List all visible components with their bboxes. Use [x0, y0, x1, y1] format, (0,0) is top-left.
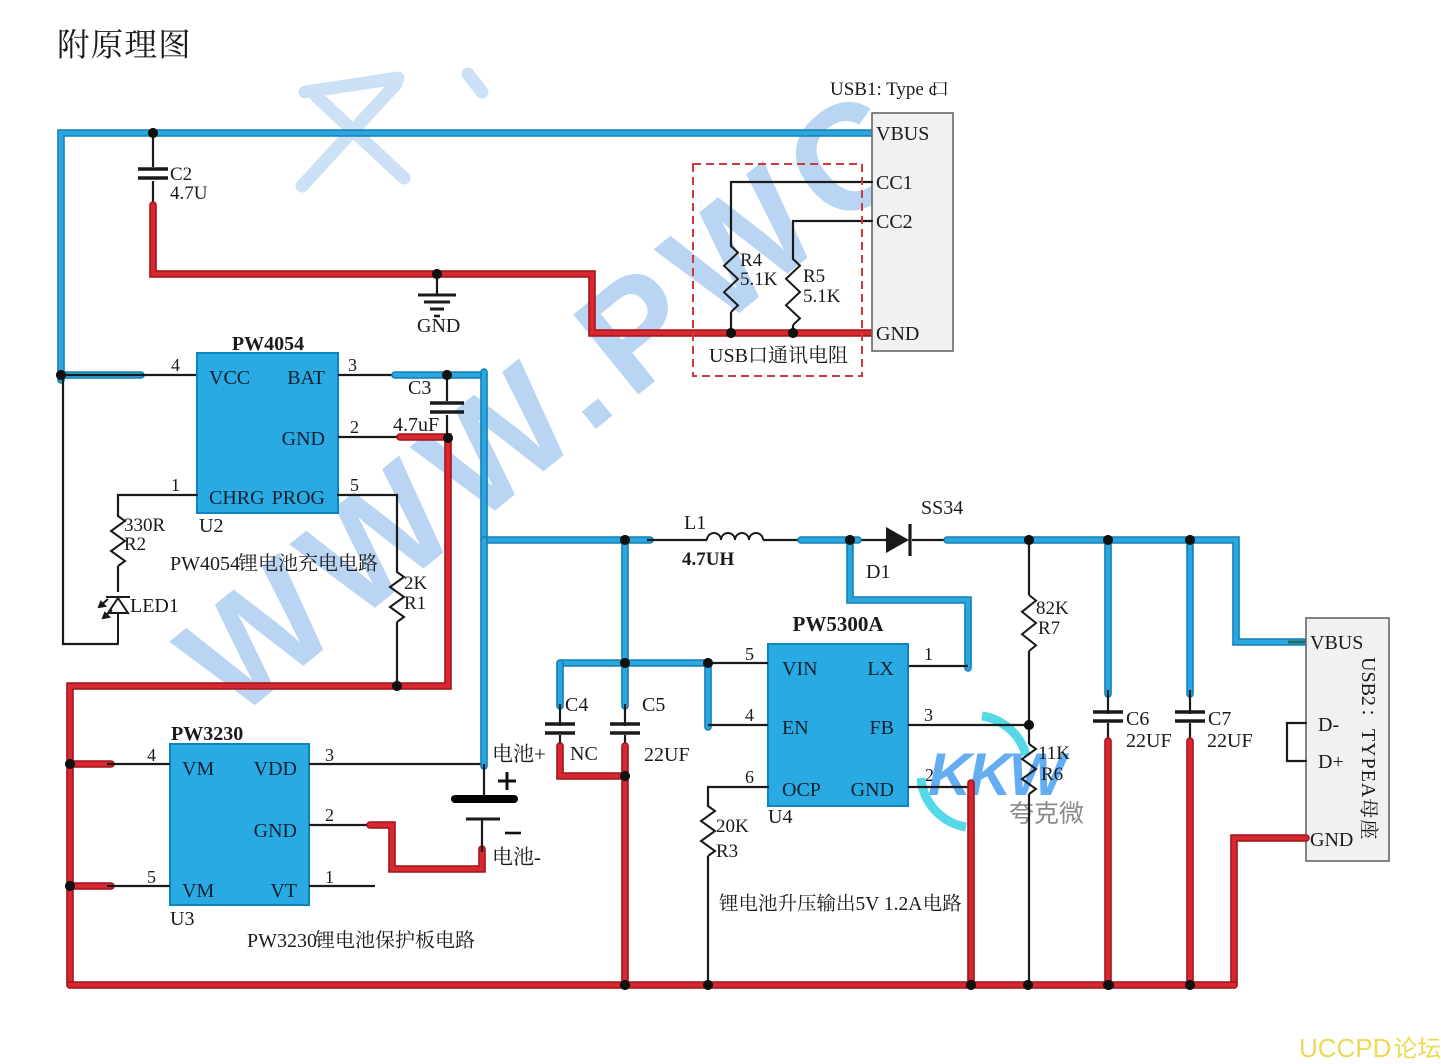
svg-text:VT: VT — [270, 880, 297, 902]
svg-text:GND: GND — [254, 820, 297, 842]
svg-text:P: P — [1357, 758, 1379, 769]
svg-text:C6: C6 — [1126, 708, 1149, 730]
svg-text:3: 3 — [924, 705, 933, 725]
svg-text:U4: U4 — [768, 806, 792, 828]
svg-text:2: 2 — [350, 417, 359, 437]
svg-text:LX: LX — [867, 658, 894, 680]
svg-text:+: + — [534, 742, 546, 766]
svg-text:-: - — [534, 845, 541, 869]
svg-text:CHRG: CHRG — [209, 487, 265, 509]
svg-text:5: 5 — [350, 475, 359, 495]
svg-text:4: 4 — [745, 705, 754, 725]
svg-text:CC2: CC2 — [876, 211, 913, 233]
svg-text:GND: GND — [417, 315, 460, 337]
svg-text:PW3230: PW3230 — [171, 723, 243, 745]
svg-text:EN: EN — [782, 717, 809, 739]
svg-text:1: 1 — [171, 475, 180, 495]
svg-text:PW3230: PW3230 — [247, 930, 317, 952]
svg-text:R7: R7 — [1038, 618, 1060, 639]
svg-text:C2: C2 — [170, 164, 192, 185]
svg-text:USB: USB — [709, 345, 748, 367]
svg-text:C7: C7 — [1208, 708, 1231, 730]
svg-text:6: 6 — [745, 767, 754, 787]
svg-text:BAT: BAT — [287, 367, 325, 389]
svg-text:VBUS: VBUS — [876, 123, 929, 145]
svg-text:PW4054: PW4054 — [170, 553, 240, 575]
svg-text:R6: R6 — [1041, 764, 1063, 785]
svg-text:4.7uF: 4.7uF — [393, 414, 439, 436]
svg-text:20K: 20K — [716, 816, 749, 837]
svg-text:FB: FB — [870, 717, 894, 739]
svg-text:5: 5 — [745, 644, 754, 664]
svg-text:VM: VM — [182, 880, 214, 902]
svg-text:5V 1.2A: 5V 1.2A — [856, 894, 923, 915]
svg-text:4: 4 — [147, 745, 156, 765]
svg-text:LED1: LED1 — [130, 595, 179, 617]
svg-text:4.7UH: 4.7UH — [682, 549, 734, 570]
svg-text:USB1: Type c: USB1: Type c — [830, 79, 937, 100]
svg-text:C5: C5 — [642, 694, 665, 716]
svg-text:U3: U3 — [170, 908, 194, 930]
svg-text:USB2: USB2 — [1357, 657, 1379, 706]
svg-text:VCC: VCC — [209, 367, 250, 389]
svg-text:U2: U2 — [199, 515, 223, 537]
svg-text:C4: C4 — [565, 694, 588, 716]
svg-text:CC1: CC1 — [876, 172, 913, 194]
svg-text:T: T — [1357, 729, 1379, 741]
svg-text:D1: D1 — [866, 561, 890, 583]
svg-text:R3: R3 — [716, 841, 738, 862]
svg-text:1: 1 — [325, 867, 334, 887]
svg-text:GND: GND — [876, 323, 919, 345]
svg-text:GND: GND — [1310, 829, 1353, 851]
svg-text:R1: R1 — [404, 593, 426, 614]
svg-text:GND: GND — [851, 779, 894, 801]
svg-text:2K: 2K — [404, 573, 428, 594]
svg-text:SS34: SS34 — [921, 497, 963, 519]
svg-text:PW4054: PW4054 — [232, 333, 304, 355]
svg-text:22UF: 22UF — [1207, 730, 1253, 752]
svg-text:PW5300A: PW5300A — [793, 612, 885, 636]
svg-text:D+: D+ — [1318, 751, 1344, 773]
svg-text:2: 2 — [325, 805, 334, 825]
svg-text:1: 1 — [924, 644, 933, 664]
svg-text:22UF: 22UF — [644, 744, 690, 766]
svg-text:C3: C3 — [408, 377, 431, 399]
svg-text:VBUS: VBUS — [1310, 632, 1363, 654]
svg-text:NC: NC — [570, 743, 598, 765]
svg-text:L1: L1 — [684, 512, 706, 534]
svg-text:VDD: VDD — [254, 758, 297, 780]
svg-text:OCP: OCP — [782, 779, 821, 801]
svg-text:3: 3 — [348, 355, 357, 375]
svg-text:A: A — [1357, 783, 1379, 798]
svg-text:330R: 330R — [124, 515, 166, 536]
svg-text:VIN: VIN — [782, 658, 818, 680]
svg-text:11K: 11K — [1038, 743, 1070, 764]
svg-text:4.7U: 4.7U — [170, 183, 208, 204]
svg-text:D-: D- — [1318, 714, 1339, 736]
svg-text:5: 5 — [147, 867, 156, 887]
svg-text:VM: VM — [182, 758, 214, 780]
svg-text:5.1K: 5.1K — [740, 269, 778, 290]
svg-text:UCCPD: UCCPD — [1299, 1033, 1391, 1063]
svg-text:R2: R2 — [124, 534, 146, 555]
svg-text:R5: R5 — [803, 266, 825, 287]
svg-text:R4: R4 — [740, 250, 763, 271]
svg-text:Y: Y — [1357, 742, 1379, 756]
svg-text:82K: 82K — [1036, 598, 1069, 619]
svg-text:3: 3 — [325, 745, 334, 765]
svg-text:22UF: 22UF — [1126, 730, 1172, 752]
svg-text:5.1K: 5.1K — [803, 286, 841, 307]
svg-text:E: E — [1357, 770, 1379, 782]
svg-text:PROG: PROG — [272, 487, 325, 509]
svg-text:4: 4 — [171, 355, 180, 375]
svg-text:GND: GND — [282, 428, 325, 450]
